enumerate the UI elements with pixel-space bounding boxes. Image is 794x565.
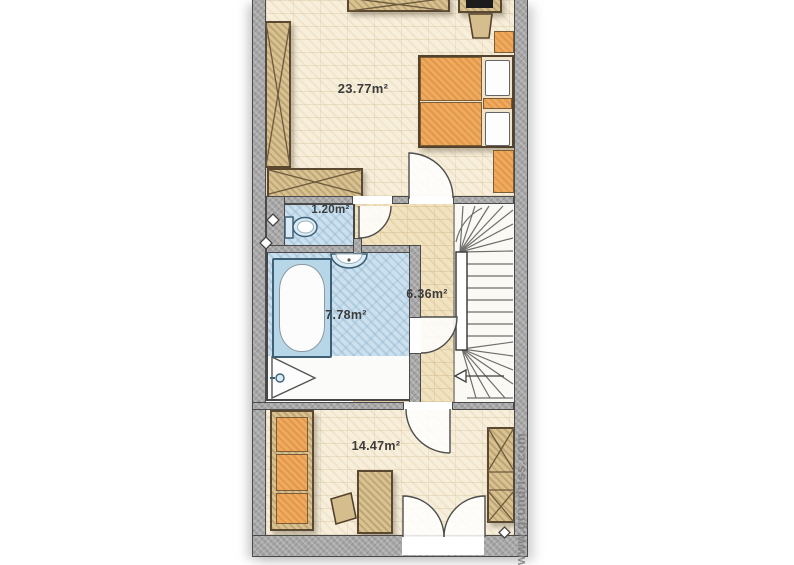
wardrobe-tall <box>265 21 291 168</box>
dresser <box>267 168 363 198</box>
wall-bedroom-sep-right <box>453 196 514 204</box>
room-bottom-area-label: 14.47m² <box>331 439 421 453</box>
floor-plan-page: { "rooms": { "bedroom": {"name": "bedroo… <box>0 0 794 555</box>
bedroom-area-label: 23.77m² <box>318 81 408 96</box>
threshold-bedroom-door <box>409 196 453 204</box>
pillow-right <box>485 112 510 146</box>
wardrobe-right <box>487 427 515 523</box>
bathroom-room <box>266 251 411 401</box>
mattress-left <box>420 57 482 101</box>
stairwell-floor <box>455 204 514 402</box>
desk <box>357 470 393 534</box>
wall-bathroom-top <box>266 245 411 253</box>
wc-area-label: 1.20m² <box>303 204 358 216</box>
sofa-cushion-1 <box>276 417 308 452</box>
threshold-room-door <box>404 402 452 410</box>
threshold-wc-door <box>353 196 392 204</box>
wall-wc-right-stub <box>353 238 362 254</box>
sofa-cushion-3 <box>276 493 308 524</box>
nightstand-top <box>494 31 514 53</box>
wall-room-sep-left <box>252 402 404 410</box>
sofa-bed <box>270 410 314 531</box>
sofa-cushion-2 <box>276 454 308 491</box>
bed-center-pad <box>483 98 512 109</box>
nightstand-bottom <box>493 150 514 193</box>
mattress-right <box>420 102 482 146</box>
wall-bathroom-right-upper <box>409 245 421 318</box>
threshold-entrance-door <box>402 537 484 555</box>
wall-outer-bottom <box>252 535 528 557</box>
table <box>347 0 450 12</box>
hallway-area-label: 6.36m² <box>389 287 465 301</box>
tv-desk <box>458 0 502 13</box>
tv-screen <box>466 0 493 8</box>
bathroom-area-label: 7.78m² <box>308 308 384 322</box>
double-bed <box>418 55 514 148</box>
pillow-left <box>485 60 510 96</box>
wall-outer-left <box>252 0 266 557</box>
threshold-bathroom-door <box>410 318 421 353</box>
wall-bedroom-sep-mid <box>392 196 409 204</box>
watermark: www.grundriss.com <box>513 435 529 565</box>
wall-room-sep-right <box>452 402 514 410</box>
